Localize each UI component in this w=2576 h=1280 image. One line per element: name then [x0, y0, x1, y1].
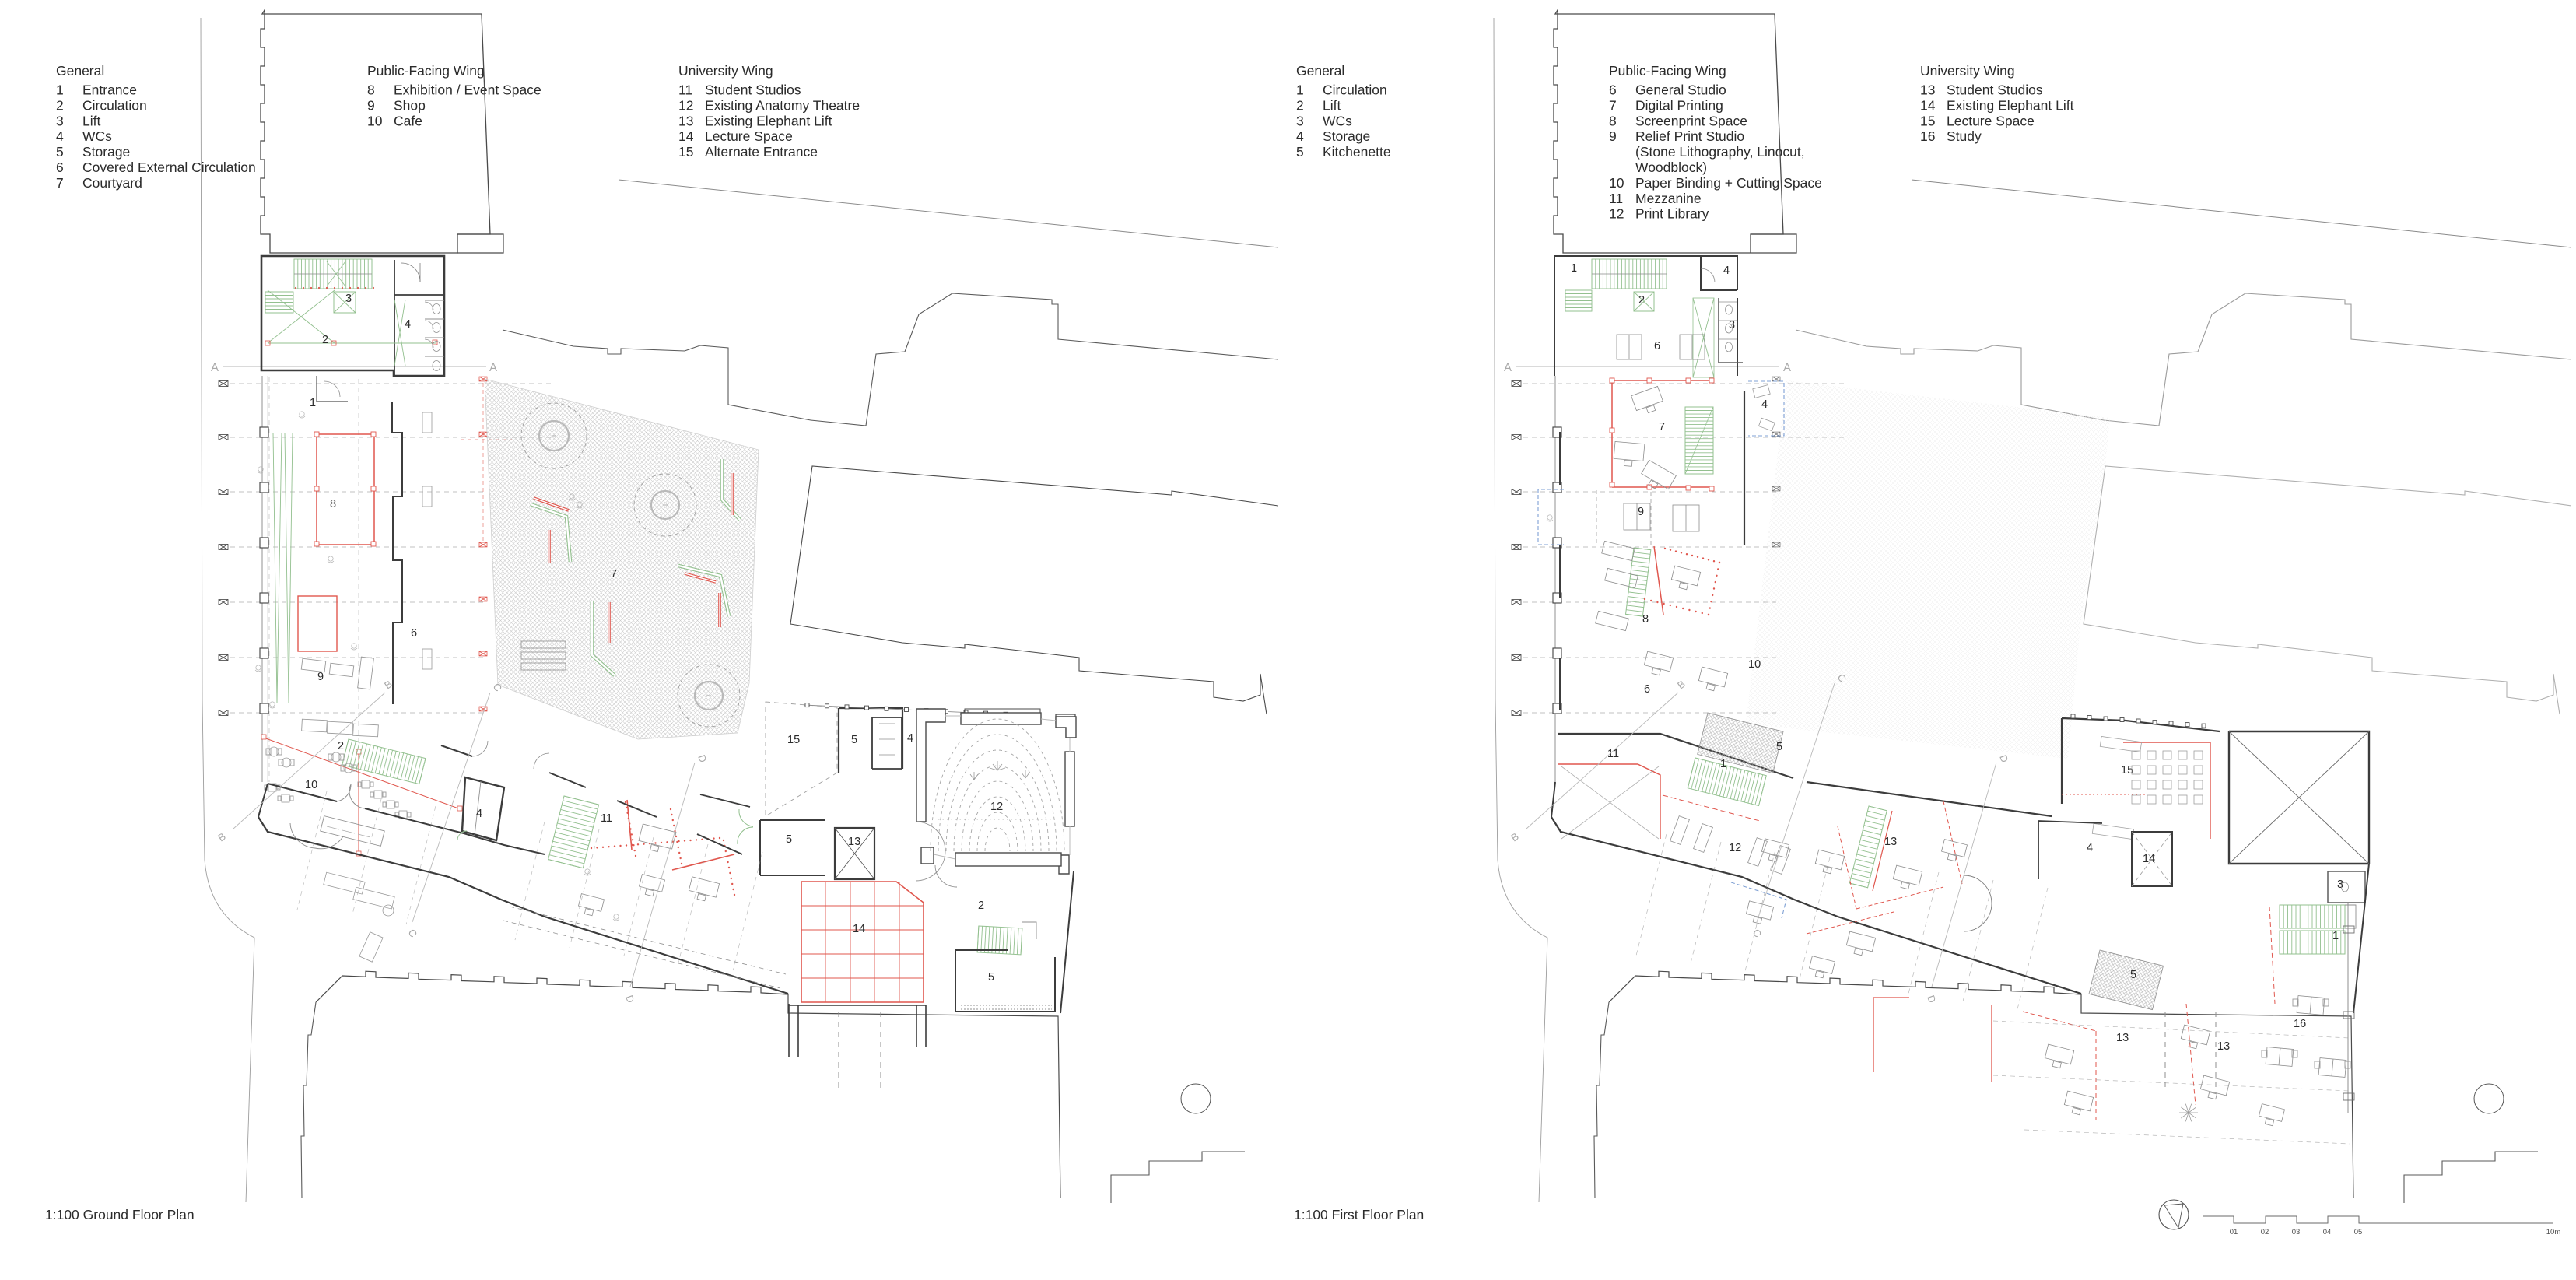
svg-text:5: 5: [56, 144, 64, 160]
svg-text:Existing Elephant Lift: Existing Elephant Lift: [705, 113, 832, 128]
svg-text:Storage: Storage: [1323, 128, 1370, 144]
svg-text:9: 9: [1638, 506, 1644, 518]
svg-text:15: 15: [678, 144, 693, 160]
svg-text:1:100 First Floor Plan: 1:100 First Floor Plan: [1294, 1207, 1424, 1222]
svg-text:2: 2: [338, 740, 344, 752]
svg-text:2: 2: [322, 334, 328, 346]
svg-text:A: A: [1504, 361, 1512, 374]
svg-text:11: 11: [1609, 191, 1623, 206]
svg-text:16: 16: [2294, 1018, 2306, 1030]
svg-text:Existing Elephant Lift: Existing Elephant Lift: [1947, 97, 2074, 113]
svg-text:WCs: WCs: [1323, 113, 1352, 128]
svg-text:Alternate Entrance: Alternate Entrance: [705, 144, 818, 160]
svg-text:1:100 Ground Floor Plan: 1:100 Ground Floor Plan: [45, 1207, 195, 1222]
svg-text:10: 10: [1748, 658, 1761, 671]
svg-text:7: 7: [1659, 421, 1665, 433]
svg-text:Existing Anatomy Theatre: Existing Anatomy Theatre: [705, 97, 860, 113]
svg-text:Lift: Lift: [1323, 97, 1341, 113]
svg-text:Digital Printing: Digital Printing: [1635, 97, 1723, 113]
svg-text:Circulation: Circulation: [1323, 82, 1387, 98]
svg-text:8: 8: [367, 82, 375, 98]
svg-text:4: 4: [476, 808, 482, 820]
svg-text:7: 7: [56, 175, 64, 191]
svg-text:8: 8: [1642, 613, 1649, 626]
svg-text:4: 4: [56, 128, 64, 144]
svg-text:2: 2: [978, 900, 984, 912]
svg-text:10: 10: [367, 113, 383, 128]
svg-text:9: 9: [367, 97, 375, 113]
svg-text:Exhibition / Event Space: Exhibition / Event Space: [394, 82, 541, 98]
svg-text:6: 6: [1609, 82, 1617, 98]
svg-text:Student Studios: Student Studios: [705, 82, 801, 98]
svg-text:8: 8: [330, 498, 336, 510]
svg-text:Screenprint Space: Screenprint Space: [1635, 113, 1747, 128]
svg-text:12: 12: [1609, 206, 1624, 222]
svg-text:2: 2: [1296, 97, 1304, 113]
svg-text:Print Library: Print Library: [1635, 206, 1709, 222]
svg-text:4: 4: [2087, 842, 2093, 854]
svg-text:Relief Print Studio: Relief Print Studio: [1635, 128, 1744, 144]
svg-text:10: 10: [1609, 175, 1624, 191]
svg-text:Storage: Storage: [82, 144, 130, 160]
svg-text:10: 10: [305, 779, 317, 791]
svg-text:Covered External Circulation: Covered External Circulation: [82, 160, 256, 175]
svg-text:Mezzanine: Mezzanine: [1635, 191, 1702, 206]
svg-text:13: 13: [1884, 836, 1897, 848]
svg-text:3: 3: [2337, 878, 2343, 891]
svg-text:13: 13: [678, 113, 693, 128]
svg-text:Woodblock): Woodblock): [1635, 160, 1707, 175]
svg-text:1: 1: [1296, 82, 1304, 98]
svg-text:Lecture Space: Lecture Space: [705, 128, 793, 144]
svg-text:13: 13: [2116, 1032, 2129, 1044]
svg-text:4: 4: [1761, 398, 1768, 411]
svg-text:04: 04: [2323, 1228, 2332, 1236]
svg-text:11: 11: [1607, 748, 1619, 760]
svg-text:3: 3: [56, 113, 64, 128]
svg-text:5: 5: [1776, 741, 1782, 753]
svg-text:16: 16: [1920, 128, 1935, 144]
svg-text:5: 5: [851, 734, 857, 746]
svg-text:14: 14: [1920, 97, 1936, 113]
svg-text:6: 6: [411, 627, 417, 640]
svg-text:11: 11: [678, 82, 692, 98]
svg-text:13: 13: [848, 836, 860, 848]
svg-text:9: 9: [317, 671, 324, 683]
svg-text:1: 1: [56, 82, 64, 98]
svg-text:1: 1: [1720, 758, 1726, 770]
svg-text:A: A: [211, 361, 219, 374]
svg-text:4: 4: [405, 318, 411, 331]
svg-text:5: 5: [786, 833, 792, 846]
svg-text:14: 14: [853, 923, 865, 935]
svg-text:Lecture Space: Lecture Space: [1947, 113, 2035, 128]
svg-text:13: 13: [2217, 1040, 2230, 1053]
svg-text:12: 12: [678, 97, 693, 113]
svg-text:Public-Facing Wing: Public-Facing Wing: [1609, 63, 1726, 79]
svg-text:12: 12: [1729, 842, 1741, 854]
svg-text:14: 14: [2143, 853, 2155, 865]
svg-text:Study: Study: [1947, 128, 1982, 144]
svg-text:General: General: [56, 63, 104, 79]
svg-text:9: 9: [1609, 128, 1617, 144]
svg-text:WCs: WCs: [82, 128, 112, 144]
svg-text:Paper Binding + Cutting Space: Paper Binding + Cutting Space: [1635, 175, 1822, 191]
svg-text:Lift: Lift: [82, 113, 100, 128]
svg-text:General Studio: General Studio: [1635, 82, 1726, 98]
svg-text:7: 7: [611, 568, 617, 580]
svg-text:4: 4: [907, 732, 913, 745]
svg-text:4: 4: [1723, 265, 1730, 277]
svg-text:1: 1: [310, 397, 316, 409]
svg-text:3: 3: [345, 293, 352, 305]
svg-text:Entrance: Entrance: [82, 82, 137, 98]
svg-text:15: 15: [1920, 113, 1935, 128]
svg-text:A: A: [489, 361, 497, 374]
svg-text:Kitchenette: Kitchenette: [1323, 144, 1391, 160]
svg-text:6: 6: [1644, 683, 1650, 696]
svg-text:13: 13: [1920, 82, 1935, 98]
svg-text:5: 5: [1296, 144, 1304, 160]
svg-text:Public-Facing Wing: Public-Facing Wing: [367, 63, 485, 79]
svg-text:1: 1: [1571, 262, 1577, 275]
svg-text:03: 03: [2292, 1228, 2301, 1236]
svg-text:Cafe: Cafe: [394, 113, 422, 128]
svg-text:12: 12: [990, 801, 1003, 813]
svg-text:2: 2: [56, 97, 64, 113]
svg-text:Circulation: Circulation: [82, 97, 147, 113]
svg-text:Student Studios: Student Studios: [1947, 82, 2043, 98]
svg-text:10m: 10m: [2546, 1228, 2561, 1236]
svg-text:5: 5: [988, 971, 994, 984]
svg-text:1: 1: [2332, 930, 2339, 942]
svg-text:05: 05: [2354, 1228, 2363, 1236]
svg-text:15: 15: [787, 734, 800, 746]
svg-text:7: 7: [1609, 97, 1617, 113]
svg-text:Shop: Shop: [394, 97, 426, 113]
svg-text:11: 11: [601, 812, 612, 825]
svg-text:02: 02: [2261, 1228, 2269, 1236]
svg-text:3: 3: [1296, 113, 1304, 128]
svg-text:6: 6: [56, 160, 64, 175]
svg-text:6: 6: [1654, 340, 1660, 352]
svg-text:General: General: [1296, 63, 1344, 79]
svg-text:A: A: [1783, 361, 1791, 374]
svg-text:Courtyard: Courtyard: [82, 175, 142, 191]
svg-text:University Wing: University Wing: [678, 63, 773, 79]
svg-text:14: 14: [678, 128, 694, 144]
svg-text:4: 4: [1296, 128, 1304, 144]
svg-text:01: 01: [2230, 1228, 2238, 1236]
svg-text:8: 8: [1609, 113, 1617, 128]
svg-text:University Wing: University Wing: [1920, 63, 2015, 79]
svg-text:5: 5: [2130, 969, 2136, 981]
svg-text:2: 2: [1638, 294, 1645, 307]
